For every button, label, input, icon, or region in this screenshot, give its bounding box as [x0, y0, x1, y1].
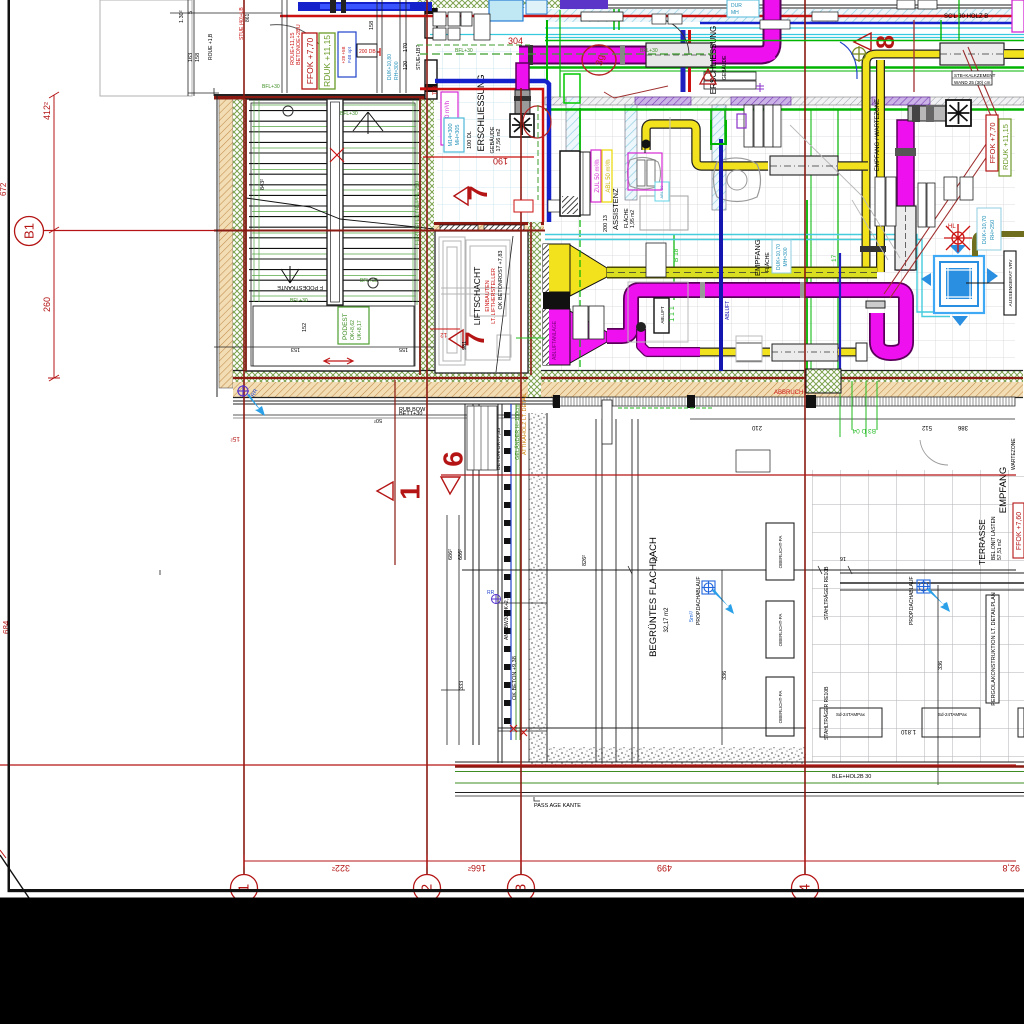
svg-text:EMPFANG / WARTEZONE: EMPFANG / WARTEZONE	[875, 99, 881, 171]
svg-text:BFL+30: BFL+30	[290, 298, 308, 304]
svg-text:FFOK +7,70: FFOK +7,70	[305, 37, 315, 84]
svg-text:PODEST: PODEST	[342, 313, 349, 340]
svg-text:ERSCHLIESSUNG: ERSCHLIESSUNG	[476, 74, 486, 151]
svg-text:843²: 843²	[260, 179, 266, 190]
svg-text:100 DL: 100 DL	[467, 131, 473, 149]
svg-text:OK BETONROST +7,83: OK BETONROST +7,83	[498, 251, 504, 310]
svg-text:92,8: 92,8	[1002, 863, 1020, 873]
svg-text:ABLUFT: ABLUFT	[660, 306, 665, 324]
svg-text:158: 158	[369, 21, 375, 30]
svg-text:17: 17	[831, 254, 838, 262]
svg-text:GELÄNDER H=100cm: GELÄNDER H=100cm	[514, 404, 521, 460]
svg-text:ZUL 50 m³/h: ZUL 50 m³/h	[595, 159, 601, 192]
svg-text:BFL+30: BFL+30	[340, 111, 358, 117]
svg-text:17,56 m2: 17,56 m2	[496, 129, 502, 152]
svg-text:B1: B1	[22, 223, 37, 239]
svg-text:333: 333	[459, 681, 465, 690]
svg-text:DUR: DUR	[731, 3, 742, 9]
svg-text:FFOK +7,60: FFOK +7,60	[1016, 512, 1023, 550]
svg-text:ASSISTENZ: ASSISTENZ	[611, 188, 620, 230]
svg-text:RDUK +11,15: RDUK +11,15	[1001, 124, 1010, 170]
svg-text:FLÄCHE: FLÄCHE	[764, 252, 771, 272]
svg-text:TERRASSE: TERRASSE	[977, 519, 987, 565]
svg-text:57,51 m2: 57,51 m2	[997, 539, 1003, 560]
svg-text:STAHLTRÄGER RE10B: STAHLTRÄGER RE10B	[823, 686, 830, 740]
svg-text:PASS AGE KANTE: PASS AGE KANTE	[534, 803, 581, 809]
svg-text:1: 1	[395, 484, 426, 500]
svg-text:GEBÄUDE: GEBÄUDE	[489, 126, 496, 153]
svg-text:AUSSENGERAT VRV: AUSSENGERAT VRV	[1008, 259, 1014, 307]
svg-text:OK BETON +9,38: OK BETON +9,38	[512, 656, 518, 700]
svg-text:200 DB: 200 DB	[359, 49, 376, 55]
svg-text:RH=250: RH=250	[990, 220, 996, 240]
svg-text:MH=305: MH=305	[455, 125, 461, 146]
svg-text:686²: 686²	[458, 549, 464, 560]
svg-text:260: 260	[42, 297, 52, 312]
svg-text:EMPFANG: EMPFANG	[998, 467, 1009, 513]
svg-text:SC'L 30 HOLZ B: SC'L 30 HOLZ B	[944, 14, 988, 20]
svg-text:OK+8,62: OK+8,62	[350, 320, 356, 340]
svg-text:LT. LIFTHERSTELLER: LT. LIFTHERSTELLER	[491, 268, 497, 324]
svg-text:T B: T B	[433, 86, 439, 95]
svg-text:336: 336	[938, 661, 944, 670]
svg-text:FFOK +7,70: FFOK +7,70	[988, 122, 997, 163]
svg-text:15²: 15²	[230, 435, 240, 442]
svg-text:5: 5	[188, 11, 194, 14]
svg-text:Sd-24TAMPax: Sd-24TAMPax	[836, 712, 866, 717]
svg-text:OBERLICHT-PA: OBERLICHT-PA	[778, 536, 783, 569]
svg-text:F4B opt: F4B opt	[347, 46, 352, 63]
svg-text:PROP.DACHABLAUF: PROP.DACHABLAUF	[696, 576, 702, 625]
svg-text:ABL 50 m³/h: ABL 50 m³/h	[606, 159, 612, 192]
svg-text:M14=300: M14=300	[448, 123, 454, 146]
svg-text:6: 6	[438, 451, 469, 467]
svg-text:RUB BOW: RUB BOW	[399, 407, 426, 413]
svg-text:499: 499	[657, 863, 672, 873]
svg-text:16: 16	[840, 555, 846, 561]
svg-text:3g: 3g	[594, 54, 607, 67]
svg-text:ATTIKAHOLZ LT. DETAIL: ATTIKAHOLZ LT. DETAIL	[522, 393, 528, 455]
svg-text:GEBÄUDE: GEBÄUDE	[721, 55, 728, 80]
svg-text:EMPFANG: EMPFANG	[753, 239, 762, 276]
svg-text:BETONOE+2BU: BETONOE+2BU	[296, 24, 302, 65]
svg-text:1 1 1: 1 1 1	[669, 306, 676, 322]
svg-text:152: 152	[302, 323, 308, 332]
svg-text:OBERLICHT-PA: OBERLICHT-PA	[778, 691, 783, 724]
svg-text:MH=300: MH=300	[783, 247, 789, 266]
svg-text:B 18: B 18	[673, 248, 680, 262]
svg-text:WAND 25 (30) cm: WAND 25 (30) cm	[954, 80, 991, 85]
svg-text:BFL+30: BFL+30	[640, 48, 658, 54]
svg-text:170: 170	[403, 43, 409, 52]
svg-text:STB+KALKZEMENT: STB+KALKZEMENT	[954, 73, 996, 78]
svg-text:F PODESTKANTE: F PODESTKANTE	[277, 284, 323, 290]
svg-text:UK+8,17: UK+8,17	[357, 320, 363, 340]
svg-text:RDUK +11,15: RDUK +11,15	[322, 35, 332, 87]
svg-text:1,95 m2: 1,95 m2	[630, 210, 636, 228]
svg-text:512: 512	[921, 424, 932, 430]
svg-text:ANS BW30 OK+2,70: ANS BW30 OK+2,70	[504, 593, 510, 640]
svg-text:HL: HL	[948, 224, 956, 230]
svg-text:RR: RR	[487, 590, 495, 596]
svg-text:672: 672	[0, 182, 8, 196]
svg-text:686²: 686²	[448, 549, 454, 560]
svg-text:32,17 m2: 32,17 m2	[664, 607, 670, 633]
svg-text:5m²/: 5m²/	[689, 611, 695, 622]
svg-text:120: 120	[403, 61, 409, 70]
svg-text:BFL+30: BFL+30	[262, 84, 280, 90]
svg-text:210: 210	[751, 424, 762, 430]
svg-text:16: 16	[652, 555, 658, 561]
svg-text:+28 +5B: +28 +5B	[341, 46, 346, 63]
svg-text:981: 981	[462, 341, 468, 350]
svg-text:STUE+1B?: STUE+1B?	[416, 45, 422, 70]
svg-text:190: 190	[493, 156, 508, 166]
svg-text:BEGRÜNTES FLACHDACH: BEGRÜNTES FLACHDACH	[648, 537, 659, 657]
svg-text:386: 386	[957, 424, 968, 430]
svg-text:ABLUFTANLAGE: ABLUFTANLAGE	[552, 320, 558, 360]
svg-text:50²: 50²	[374, 417, 382, 423]
svg-text:163: 163	[188, 53, 194, 62]
svg-text:WARTEZONE: WARTEZONE	[1011, 438, 1017, 470]
svg-text:ABLUFT: ABLUFT	[725, 301, 731, 320]
svg-text:322²: 322²	[332, 863, 350, 873]
svg-text:MH: MH	[731, 10, 739, 16]
svg-text:1.810: 1.810	[900, 728, 916, 734]
svg-text:FLÄCHE: FLÄCHE	[623, 208, 630, 228]
svg-text:B3 D 04: B3 D 04	[852, 427, 876, 434]
svg-text:DUK+10,80: DUK+10,80	[387, 54, 393, 80]
svg-text:BFL+30: BFL+30	[455, 48, 473, 54]
svg-text:STAHLTRÄGER RE10B: STAHLTRÄGER RE10B	[823, 566, 830, 620]
svg-text:RH=300: RH=300	[394, 61, 400, 80]
svg-text:PROP.DACHABLAUF: PROP.DACHABLAUF	[909, 576, 915, 625]
svg-text:DUK+10,70: DUK+10,70	[776, 244, 782, 270]
svg-text:336: 336	[722, 671, 728, 680]
svg-text:153: 153	[291, 346, 300, 352]
svg-text:8: 8	[872, 35, 900, 49]
svg-text:155: 155	[399, 346, 408, 352]
svg-text:ROUE +1,B: ROUE +1,B	[208, 33, 214, 60]
svg-text:166²: 166²	[468, 863, 486, 873]
svg-text:BLE+HOL2B 30: BLE+HOL2B 30	[832, 774, 871, 780]
svg-text:158: 158	[195, 53, 201, 62]
svg-text:1.30²: 1.30²	[179, 10, 185, 23]
svg-text:412²: 412²	[42, 102, 52, 120]
svg-text:ABBRUCH: ABBRUCH	[774, 390, 803, 396]
svg-text:861: 861	[245, 13, 251, 22]
svg-text:12: 12	[440, 331, 447, 337]
svg-text:DUK+10,70: DUK+10,70	[982, 216, 988, 245]
svg-text:200 13: 200 13	[603, 215, 609, 232]
svg-text:826²: 826²	[582, 555, 588, 566]
svg-text:OBERLICHT-PA: OBERLICHT-PA	[778, 614, 783, 647]
svg-text:Sd-24TAMPax: Sd-24TAMPax	[938, 712, 968, 717]
svg-text:LIFTSCHACHT: LIFTSCHACHT	[472, 267, 482, 326]
svg-text:PERGOLAKONSTRUKTION LT. DETAIL: PERGOLAKONSTRUKTION LT. DETAILPLAN	[991, 592, 997, 706]
